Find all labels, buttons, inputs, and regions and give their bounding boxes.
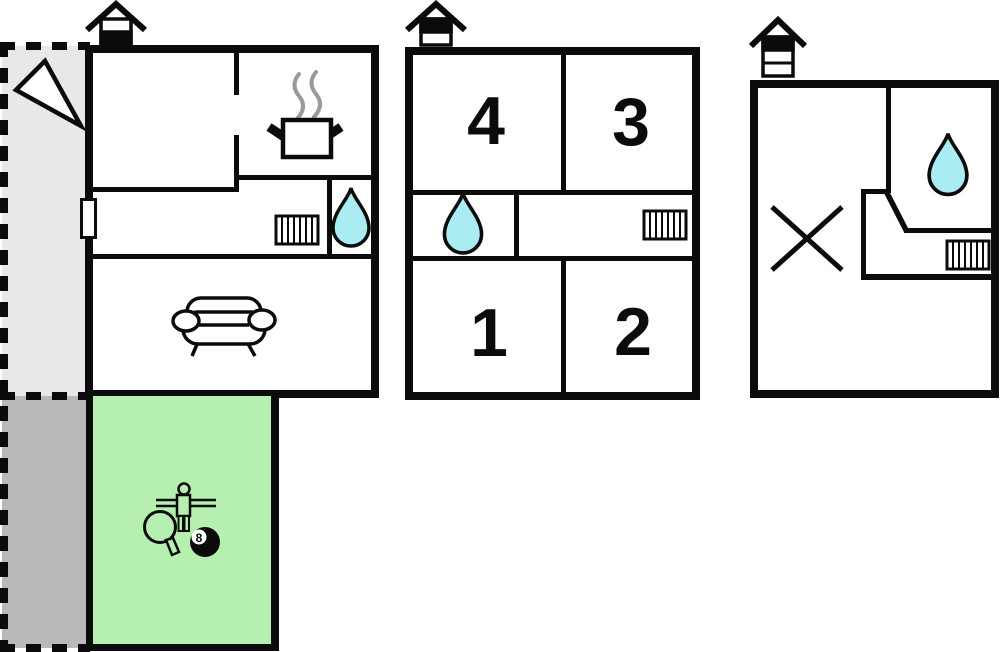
wall-segment <box>991 80 999 398</box>
wall-diagonal-segment <box>884 189 910 234</box>
wall-segment <box>405 47 413 400</box>
radiator-icon <box>274 214 320 246</box>
house-floor-indicator-icon <box>84 0 148 48</box>
house-floor-indicator-icon <box>404 0 468 48</box>
wall-segment <box>234 175 377 180</box>
water-drop-icon <box>331 186 371 248</box>
wall-segment <box>86 394 93 650</box>
wall-segment <box>410 256 695 261</box>
wall-segment <box>692 47 700 400</box>
wall-segment <box>405 392 700 400</box>
door <box>80 198 97 239</box>
terrace-dashed-border-top <box>0 42 90 50</box>
floor-plan-canvas: 4 3 1 2 <box>0 0 1001 652</box>
wall-segment <box>861 189 866 279</box>
wall-segment <box>90 254 376 259</box>
sofa-icon <box>170 296 276 358</box>
terrace-dashed-divider <box>0 392 90 400</box>
wall-segment <box>750 80 758 398</box>
wall-segment <box>514 193 519 258</box>
direction-arrow-icon <box>10 52 86 132</box>
room-label-2: 2 <box>593 292 673 372</box>
table-tennis-paddle-icon <box>145 512 180 556</box>
terrace-lower-area <box>2 396 88 648</box>
wall-segment <box>750 390 999 398</box>
terrace-dashed-border-bottom <box>0 644 90 652</box>
wall-segment <box>90 187 239 192</box>
room-label-4: 4 <box>446 81 526 161</box>
steam-icon <box>312 72 321 117</box>
eight-ball-icon: 8 <box>190 527 220 557</box>
wall-segment <box>234 53 239 95</box>
water-drop-icon <box>441 191 485 255</box>
house-floor-indicator-icon <box>748 14 808 78</box>
game-room-icons: 8 <box>138 468 234 564</box>
wall-segment <box>405 47 700 55</box>
water-drop-icon <box>927 129 969 199</box>
wall-segment <box>904 228 996 233</box>
wall-segment <box>750 80 999 88</box>
wall-segment <box>371 45 379 398</box>
wall-segment <box>561 53 566 193</box>
radiator-icon <box>642 209 688 241</box>
cross-mark-icon <box>770 205 844 272</box>
wall-segment <box>886 86 891 193</box>
wall-segment <box>234 135 239 192</box>
eight-ball-number: 8 <box>196 531 203 545</box>
cooking-pot-icon <box>258 62 352 160</box>
terrace-dashed-border-left <box>0 42 8 652</box>
steam-icon <box>295 74 304 119</box>
wall-segment <box>561 259 566 395</box>
room-label-3: 3 <box>591 82 671 162</box>
wall-segment <box>86 644 279 651</box>
radiator-icon <box>945 239 991 271</box>
room-label-1: 1 <box>449 293 529 373</box>
wall-segment <box>861 274 995 280</box>
wall-segment <box>271 394 279 650</box>
